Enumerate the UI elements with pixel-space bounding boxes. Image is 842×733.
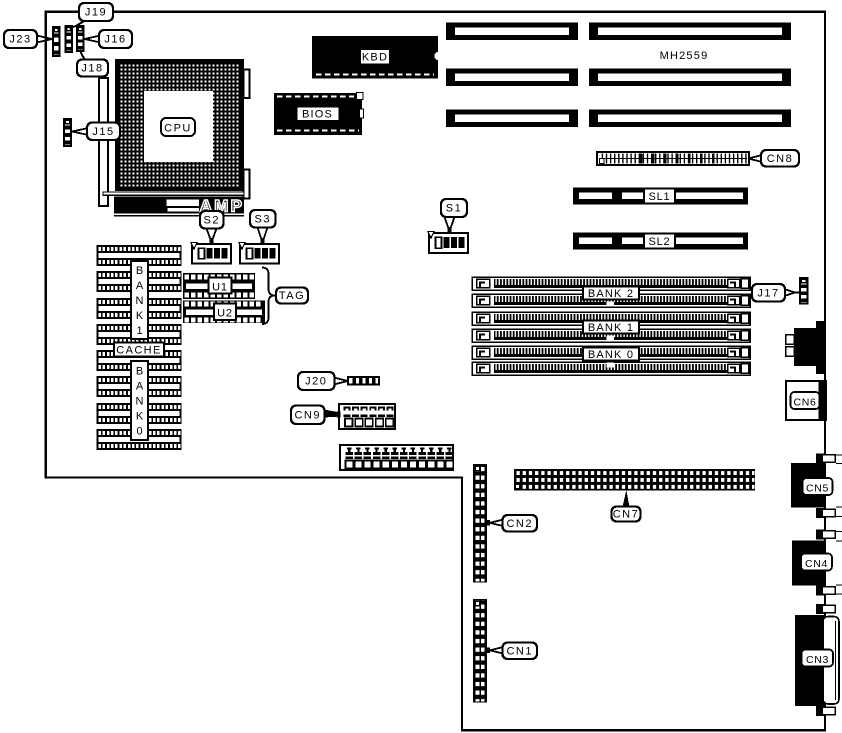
svg-text:SL2: SL2 xyxy=(649,236,671,248)
svg-text:CN4: CN4 xyxy=(805,558,828,570)
svg-text:K: K xyxy=(136,310,144,322)
svg-text:CN7: CN7 xyxy=(613,509,640,521)
svg-text:S3: S3 xyxy=(255,213,271,225)
svg-text:U1: U1 xyxy=(212,282,228,294)
svg-text:CN9: CN9 xyxy=(294,409,321,421)
svg-text:U2: U2 xyxy=(217,308,233,320)
svg-text:0: 0 xyxy=(136,426,142,438)
svg-text:SL1: SL1 xyxy=(649,191,671,203)
svg-text:CN5: CN5 xyxy=(806,483,829,495)
svg-text:KBD: KBD xyxy=(362,52,388,64)
svg-text:A: A xyxy=(136,381,144,393)
svg-text:TAG: TAG xyxy=(279,290,305,302)
svg-text:B: B xyxy=(136,265,143,277)
svg-text:J19: J19 xyxy=(85,7,107,19)
svg-text:N: N xyxy=(136,396,144,408)
svg-text:CN3: CN3 xyxy=(806,654,829,666)
svg-text:J16: J16 xyxy=(104,34,126,46)
svg-text:BANK 0: BANK 0 xyxy=(588,349,634,361)
svg-text:K: K xyxy=(136,411,144,423)
svg-text:CN1: CN1 xyxy=(506,645,533,657)
svg-text:MH2559: MH2559 xyxy=(660,50,709,62)
svg-text:B: B xyxy=(136,366,143,378)
svg-text:CN6: CN6 xyxy=(793,397,816,409)
svg-text:A: A xyxy=(136,280,144,292)
svg-text:S2: S2 xyxy=(204,214,220,226)
svg-text:J23: J23 xyxy=(9,34,31,46)
svg-text:J15: J15 xyxy=(92,126,114,138)
svg-text:S1: S1 xyxy=(446,203,462,215)
svg-text:J17: J17 xyxy=(757,287,779,299)
svg-text:1: 1 xyxy=(136,325,142,337)
svg-text:CN2: CN2 xyxy=(506,518,533,530)
svg-text:BANK 2: BANK 2 xyxy=(588,288,634,300)
svg-text:BANK 1: BANK 1 xyxy=(588,322,634,334)
svg-text:CN8: CN8 xyxy=(767,153,794,165)
svg-text:J18: J18 xyxy=(81,63,103,75)
svg-text:J20: J20 xyxy=(305,376,327,388)
svg-text:BIOS: BIOS xyxy=(302,109,333,121)
svg-text:CACHE: CACHE xyxy=(116,344,162,356)
svg-text:CPU: CPU xyxy=(164,123,192,135)
svg-text:N: N xyxy=(136,295,144,307)
